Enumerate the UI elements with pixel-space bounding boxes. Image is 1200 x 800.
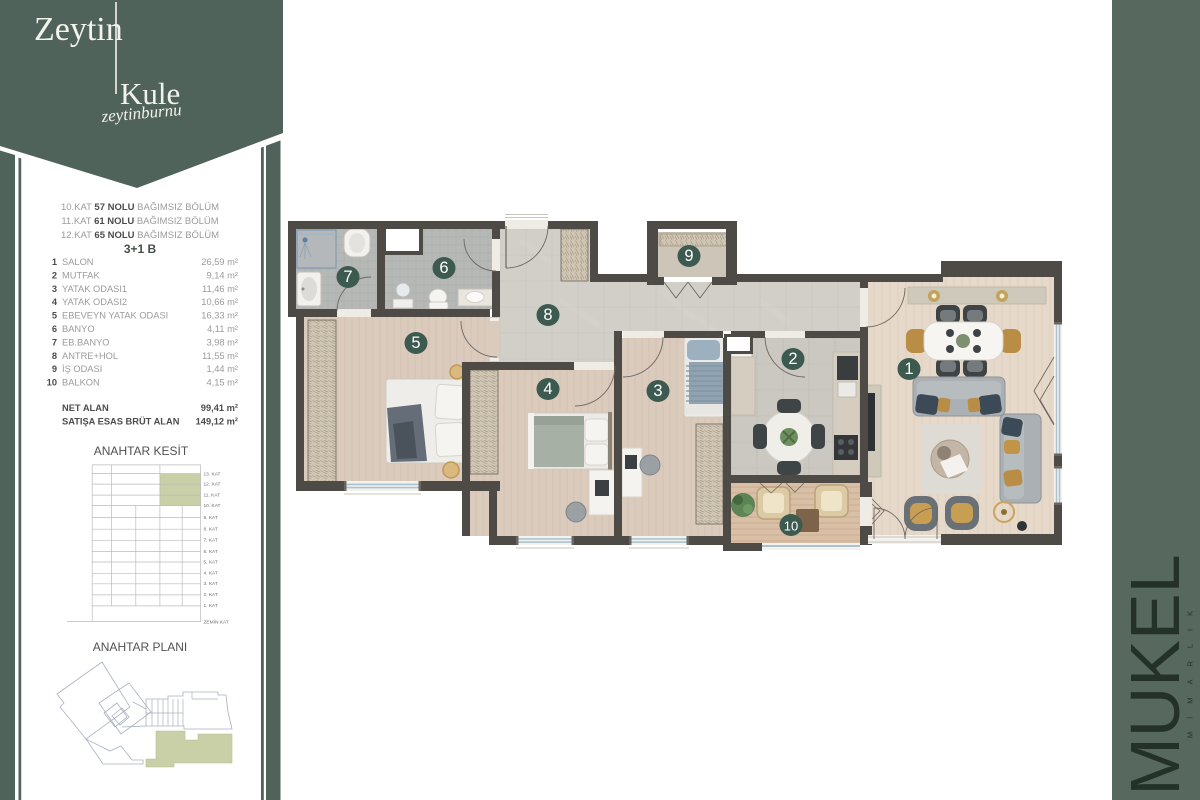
svg-text:12.KAT 65 NOLU BAĞIMSIZ BÖLÜM: 12.KAT 65 NOLU BAĞIMSIZ BÖLÜM [61,230,219,241]
svg-text:1: 1 [904,360,913,378]
svg-text:7: 7 [343,268,352,286]
svg-text:10.KAT 57 NOLU BAĞIMSIZ BÖLÜM: 10.KAT 57 NOLU BAĞIMSIZ BÖLÜM [61,202,219,213]
svg-text:7. KAT: 7. KAT [204,538,218,544]
svg-text:7: 7 [52,337,57,347]
svg-text:2: 2 [52,270,57,280]
svg-text:1,44 m²: 1,44 m² [206,364,238,374]
svg-text:5: 5 [411,334,420,352]
svg-text:MİMARLIK: MİMARLIK [1186,598,1195,738]
svg-text:3: 3 [653,382,662,400]
svg-text:ZEMİN KAT: ZEMİN KAT [204,619,229,626]
svg-text:9,14 m²: 9,14 m² [206,270,238,280]
svg-text:YATAK ODASI2: YATAK ODASI2 [62,297,127,307]
svg-text:10. KAT: 10. KAT [204,503,221,509]
svg-text:4: 4 [543,380,552,398]
svg-text:3,98 m²: 3,98 m² [206,337,238,347]
svg-text:13. KAT: 13. KAT [204,472,221,478]
svg-text:9. KAT: 9. KAT [204,515,218,521]
svg-text:11. KAT: 11. KAT [204,493,221,499]
svg-text:SATIŞA ESAS BRÜT ALAN: SATIŞA ESAS BRÜT ALAN [62,417,180,427]
svg-text:6: 6 [52,324,57,334]
svg-text:9: 9 [684,247,693,265]
svg-text:İŞ ODASI: İŞ ODASI [62,364,102,374]
svg-text:ANAHTAR KESİT: ANAHTAR KESİT [94,444,189,458]
svg-text:MUTFAK: MUTFAK [62,270,101,280]
svg-text:1: 1 [52,257,57,267]
svg-text:99,41 m²: 99,41 m² [201,403,238,413]
svg-text:ANTRE+HOL: ANTRE+HOL [62,351,118,361]
svg-text:NET ALAN: NET ALAN [62,403,109,413]
svg-text:149,12 m²: 149,12 m² [196,417,238,427]
svg-text:SALON: SALON [62,257,94,267]
svg-text:10: 10 [47,378,57,388]
svg-text:6: 6 [439,259,448,277]
svg-text:1. KAT: 1. KAT [204,603,218,609]
svg-text:6. KAT: 6. KAT [204,549,218,555]
svg-text:10: 10 [784,519,798,534]
svg-text:5. KAT: 5. KAT [204,560,218,566]
svg-text:3+1 B: 3+1 B [124,242,157,256]
svg-text:11.KAT 61 NOLU BAĞIMSIZ BÖLÜM: 11.KAT 61 NOLU BAĞIMSIZ BÖLÜM [61,216,218,227]
svg-text:3: 3 [52,284,57,294]
svg-text:ANAHTAR PLANI: ANAHTAR PLANI [93,640,187,654]
svg-text:2. KAT: 2. KAT [204,592,218,598]
svg-text:4: 4 [52,297,58,307]
svg-text:4,11 m²: 4,11 m² [207,324,238,334]
svg-text:MUKEL: MUKEL [1116,554,1194,795]
svg-text:BANYO: BANYO [62,324,95,334]
svg-text:BALKON: BALKON [62,378,100,388]
svg-text:5: 5 [52,311,57,321]
svg-text:11,55 m²: 11,55 m² [202,351,238,361]
svg-text:Zeytin: Zeytin [34,11,123,48]
svg-text:8. KAT: 8. KAT [204,527,218,533]
svg-text:YATAK ODASI1: YATAK ODASI1 [62,284,127,294]
svg-text:8: 8 [543,306,552,324]
svg-text:16,33 m²: 16,33 m² [201,311,238,321]
svg-text:4,15 m²: 4,15 m² [206,378,238,388]
svg-text:9: 9 [52,364,57,374]
svg-text:12. KAT: 12. KAT [204,482,221,488]
svg-text:3. KAT: 3. KAT [204,581,218,587]
svg-text:10,66 m²: 10,66 m² [201,297,238,307]
svg-text:EBEVEYN YATAK ODASI: EBEVEYN YATAK ODASI [62,311,168,321]
svg-text:2: 2 [788,350,797,368]
svg-text:8: 8 [52,351,57,361]
svg-text:4. KAT: 4. KAT [204,571,218,577]
svg-text:EB.BANYO: EB.BANYO [62,337,110,347]
svg-text:26,59 m²: 26,59 m² [201,257,238,267]
svg-text:11,46 m²: 11,46 m² [202,284,238,294]
